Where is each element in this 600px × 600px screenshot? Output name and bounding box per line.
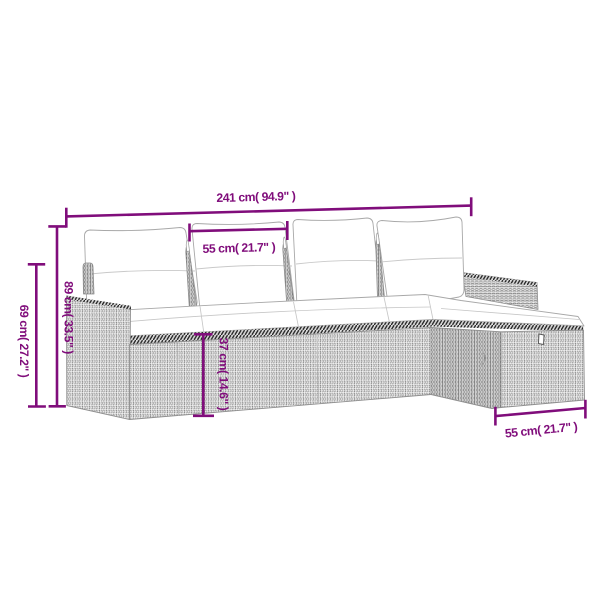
svg-text:55 cm( 21.7" ): 55 cm( 21.7" ): [202, 240, 275, 256]
svg-text:37 cm( 14.6" ): 37 cm( 14.6" ): [216, 338, 230, 411]
svg-text:241 cm( 94.9" ): 241 cm( 94.9" ): [216, 189, 296, 205]
svg-text:55 cm( 21.7" ): 55 cm( 21.7" ): [504, 419, 578, 440]
svg-text:89 cm( 33.5" ): 89 cm( 33.5" ): [62, 281, 76, 354]
svg-text:69 cm( 27.2" ): 69 cm( 27.2" ): [17, 305, 31, 378]
